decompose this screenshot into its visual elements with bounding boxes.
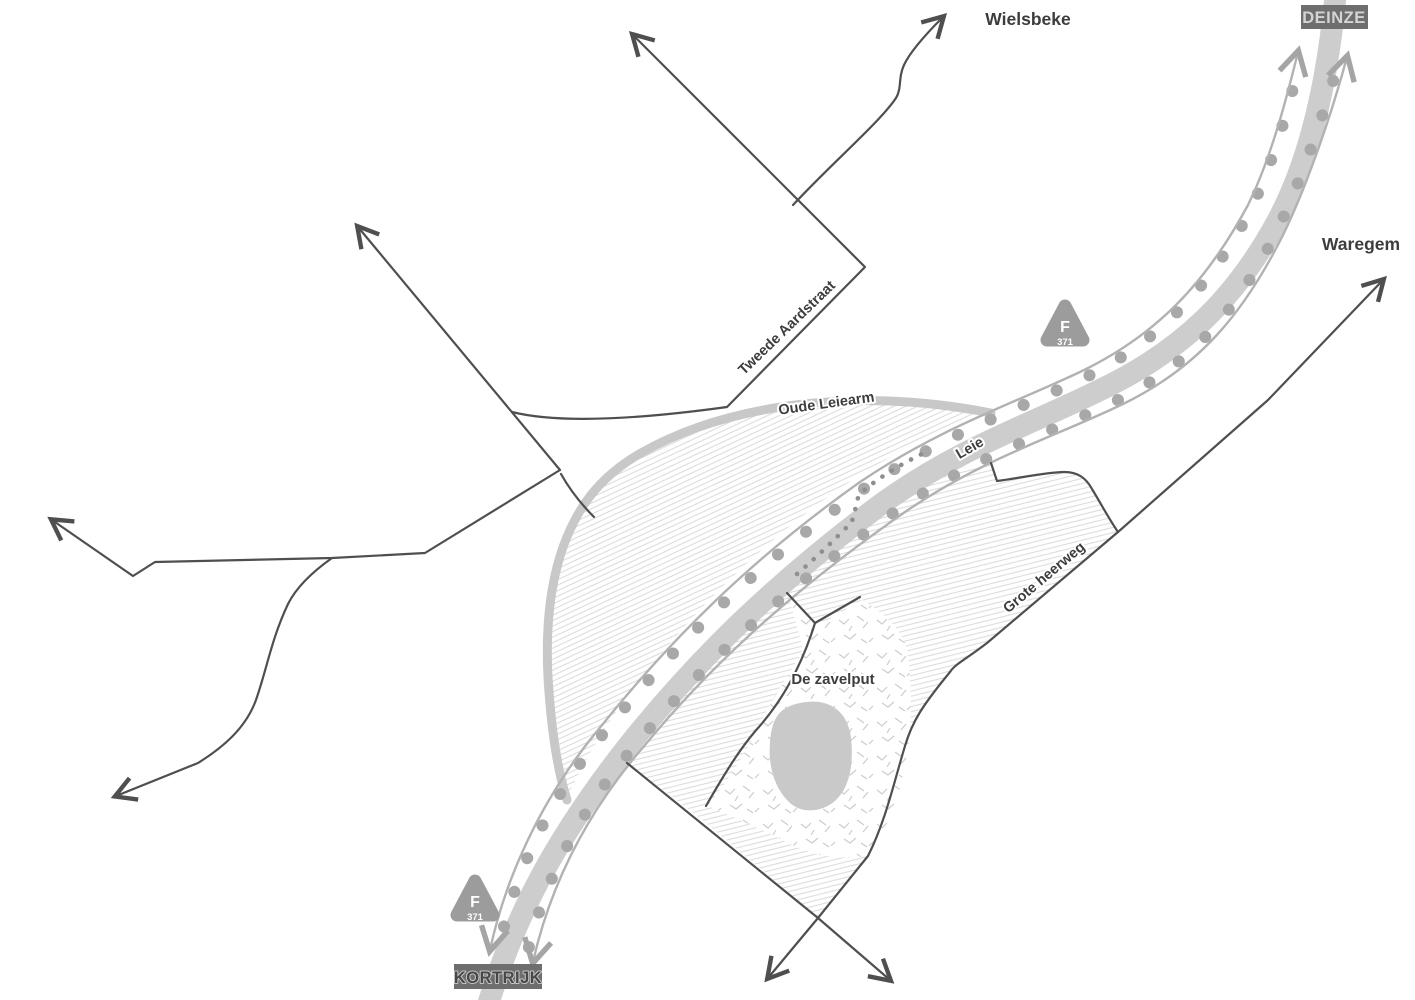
badge-number: 371 [1057,337,1074,348]
label-waregem: Waregem [1322,234,1400,254]
road-southwest-branch [116,558,332,796]
road-northwest [52,227,560,576]
badge-letter: F [470,894,480,911]
label-wielsbeke: Wielsbeke [985,9,1071,29]
road-to-wielsbeke [793,17,943,205]
badge-number: 371 [467,912,484,923]
sign-deinze: DEINZE [1301,5,1368,29]
label-de-zavelput: De zavelput [791,671,874,688]
detour-map: F 371 F 371 Tweede Aardstraat Oude Leiea… [0,0,1415,1000]
badge-letter: F [1060,319,1070,336]
sign-kortrijk: KORTRIJK [454,964,542,989]
f371-badge-north: F 371 [1047,306,1083,348]
label-tweede-aardstraat: Tweede Aardstraat [736,278,839,379]
map-canvas: F 371 F 371 Tweede Aardstraat Oude Leiea… [0,0,1415,1000]
f371-badge-south: F 371 [457,881,493,923]
road-tweede-aardstraat [512,35,865,419]
sign-deinze-text: DEINZE [1302,9,1366,27]
sign-kortrijk-text: KORTRIJK [454,969,542,987]
